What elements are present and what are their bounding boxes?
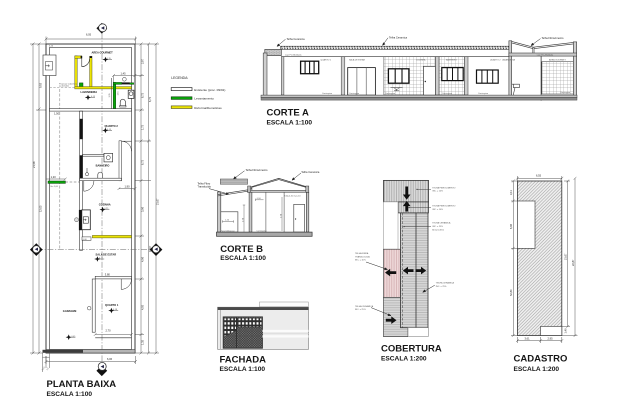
svg-text:TRANSLUCIDA: TRANSLUCIDA	[355, 255, 370, 258]
svg-text:6,75: 6,75	[141, 159, 145, 165]
svg-text:Laje Pre-Moldada: Laje Pre-Moldada	[537, 54, 554, 57]
svg-text:INC. = 25%: INC. = 25%	[432, 226, 443, 228]
svg-text:TELHA FIBROCIMENTO: TELHA FIBROCIMENTO	[432, 186, 455, 189]
svg-text:4,06: 4,06	[141, 256, 145, 262]
svg-text:3,11: 3,11	[509, 190, 513, 195]
svg-text:6,06: 6,06	[107, 357, 113, 361]
svg-text:SALA DE ESTAR: SALA DE ESTAR	[96, 252, 117, 256]
svg-text:Contrapiso: Contrapiso	[560, 91, 571, 94]
svg-text:2,70: 2,70	[106, 328, 112, 332]
svg-text:QUARTO 2: QUARTO 2	[490, 58, 501, 61]
svg-text:H= 1,00: H= 1,00	[51, 186, 59, 188]
svg-text:3,06: 3,06	[141, 206, 145, 212]
svg-text:INC. = 10%: INC. = 10%	[432, 191, 443, 193]
svg-text:BANHEIRO: BANHEIRO	[446, 58, 457, 61]
svg-text:Levantamento: Levantamento	[194, 97, 214, 101]
svg-text:ESCALA 1:100: ESCALA 1:100	[220, 255, 266, 262]
svg-text:COBERTURA: COBERTURA	[381, 343, 442, 354]
svg-text:FACHADA: FACHADA	[220, 354, 267, 365]
svg-text:Laje Pre-Moldada: Laje Pre-Moldada	[285, 53, 302, 56]
svg-text:ESCALA 1:200: ESCALA 1:200	[381, 355, 427, 362]
svg-text:INC. = 25%: INC. = 25%	[436, 286, 447, 288]
svg-text:TELHA FIBRA: TELHA FIBRA	[355, 252, 369, 255]
svg-text:Existente (proc. 09/91): Existente (proc. 09/91)	[194, 88, 225, 92]
svg-text:QUARTO 1: QUARTO 1	[321, 58, 332, 61]
svg-text:AREA GOURMET: AREA GOURMET	[549, 59, 566, 62]
svg-text:AREA GOURMET: AREA GOURMET	[92, 50, 114, 54]
svg-text:LAVANDERIA: LAVANDERIA	[502, 59, 515, 62]
svg-text:ESCALA 1:200: ESCALA 1:200	[514, 366, 560, 373]
svg-text:LAVANDERIA: LAVANDERIA	[81, 90, 98, 94]
svg-text:ESCALA 1:100: ESCALA 1:100	[220, 366, 266, 373]
svg-text:2,87: 2,87	[141, 58, 145, 64]
svg-text:CADASTRO: CADASTRO	[514, 354, 568, 365]
svg-text:BANHEIRO: BANHEIRO	[96, 164, 110, 168]
svg-text:GARAGEM: GARAGEM	[63, 309, 77, 313]
svg-text:6,75: 6,75	[141, 92, 145, 98]
svg-text:6,55: 6,55	[536, 173, 542, 177]
svg-text:INC. = 10%: INC. = 10%	[432, 209, 443, 211]
svg-text:1,40: 1,40	[564, 328, 568, 334]
svg-text:TELHA CERAMICA: TELHA CERAMICA	[432, 222, 451, 225]
svg-text:9,92: 9,92	[39, 82, 43, 88]
svg-text:21,58: 21,58	[32, 161, 36, 168]
svg-text:LEGENDA:: LEGENDA:	[171, 76, 188, 80]
svg-text:Telha Ceramica: Telha Ceramica	[389, 35, 408, 39]
svg-text:Contrapiso: Contrapiso	[478, 92, 489, 95]
svg-text:22,87: 22,87	[571, 259, 575, 266]
svg-text:Contrapiso: Contrapiso	[349, 92, 360, 95]
svg-text:TELHA CERAMICA: TELHA CERAMICA	[436, 282, 455, 285]
svg-text:1,45: 1,45	[121, 71, 127, 75]
svg-text:ESCALA 1:100: ESCALA 1:100	[47, 391, 93, 398]
svg-text:2,95: 2,95	[548, 337, 554, 341]
svg-text:TELHA FIBROCIMENTO: TELHA FIBROCIMENTO	[432, 205, 455, 208]
svg-text:ESCALA 1:100: ESCALA 1:100	[267, 119, 313, 126]
svg-text:1,90: 1,90	[125, 185, 131, 189]
svg-text:(a demolir): (a demolir)	[59, 85, 69, 88]
svg-text:Contrapiso: Contrapiso	[385, 92, 396, 95]
svg-text:Telha Fibrocimento: Telha Fibrocimento	[246, 168, 268, 172]
svg-text:Beiral 0,35m: Beiral 0,35m	[432, 228, 444, 231]
svg-text:Contrapiso: Contrapiso	[322, 92, 333, 95]
svg-text:TELHA CERAMICA: TELHA CERAMICA	[355, 305, 374, 308]
svg-text:6,96: 6,96	[509, 223, 513, 229]
svg-text:QUARTO 1: QUARTO 1	[105, 303, 119, 307]
svg-text:6,05: 6,05	[86, 32, 92, 36]
svg-text:Telha Fibrocimento: Telha Fibrocimento	[542, 36, 564, 40]
svg-text:3,80: 3,80	[105, 272, 111, 276]
svg-text:Telha Ceramica: Telha Ceramica	[301, 170, 320, 174]
svg-text:COZINHA: COZINHA	[99, 203, 111, 207]
svg-text:Contrapiso: Contrapiso	[442, 92, 453, 95]
svg-text:1,20: 1,20	[51, 175, 57, 179]
svg-text:INC. = 10%: INC. = 10%	[355, 260, 366, 262]
svg-text:Translucida: Translucida	[197, 185, 211, 189]
svg-text:CORTE B: CORTE B	[220, 244, 263, 255]
svg-text:12,05: 12,05	[39, 205, 43, 212]
svg-text:1,50: 1,50	[54, 111, 60, 115]
svg-text:SALA DE ESTAR: SALA DE ESTAR	[349, 58, 366, 61]
svg-text:52,80: 52,80	[509, 289, 513, 296]
svg-text:PLANTA BAIXA: PLANTA BAIXA	[47, 379, 117, 390]
svg-text:1,35: 1,35	[141, 339, 145, 345]
svg-text:21,67: 21,67	[564, 253, 568, 260]
svg-text:QUARTO 2: QUARTO 2	[105, 124, 119, 128]
svg-text:4,05: 4,05	[141, 304, 145, 310]
svg-text:COZINHA: COZINHA	[416, 58, 426, 61]
svg-text:INC. = 25%: INC. = 25%	[355, 309, 366, 311]
svg-text:6,75: 6,75	[148, 96, 152, 102]
svg-text:Telha Ceramica: Telha Ceramica	[287, 37, 306, 41]
svg-text:3,61: 3,61	[525, 337, 531, 341]
svg-text:CORTE A: CORTE A	[267, 108, 310, 119]
svg-text:Reforma/Demolicao: Reforma/Demolicao	[194, 106, 222, 110]
svg-text:1,75: 1,75	[141, 124, 145, 130]
svg-text:h:A=2,10 m=1,10: h:A=2,10 m=1,10	[285, 194, 302, 197]
svg-text:21,67: 21,67	[155, 198, 159, 205]
